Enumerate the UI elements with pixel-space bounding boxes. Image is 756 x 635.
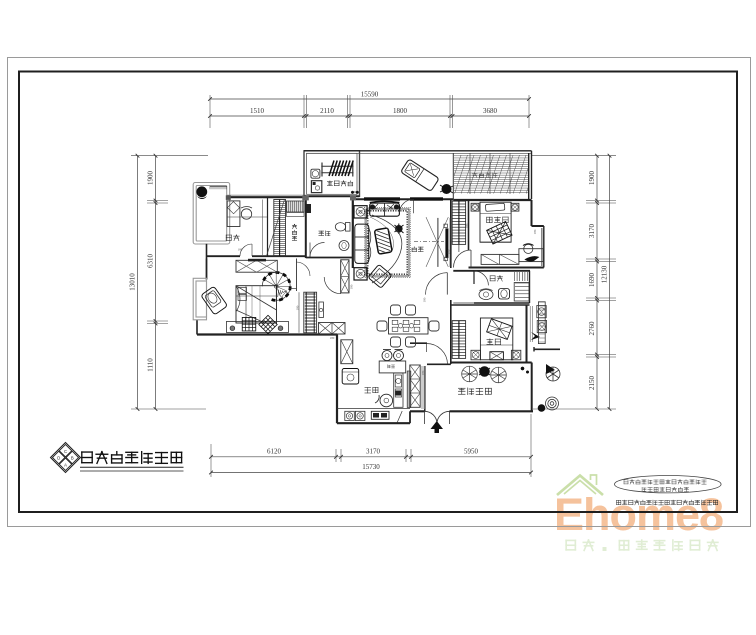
svg-text:A: A [64,462,67,467]
svg-text:3170: 3170 [366,448,381,456]
svg-text:6310: 6310 [147,254,155,269]
svg-text:2110: 2110 [320,107,334,115]
svg-text:3170: 3170 [588,224,596,239]
svg-text:6120: 6120 [267,448,282,456]
svg-text:B: B [71,456,74,461]
svg-text:1510: 1510 [250,107,265,115]
svg-text:D: D [57,456,60,461]
svg-text:180: 180 [421,370,425,375]
svg-text:15590: 15590 [361,91,379,99]
svg-text:180: 180 [350,284,354,289]
svg-text:13010: 13010 [129,273,137,291]
svg-text:2150: 2150 [588,376,596,391]
svg-text:1900: 1900 [147,171,155,186]
svg-text:180: 180 [330,336,335,340]
svg-text:5950: 5950 [464,448,479,456]
svg-text:1900: 1900 [588,171,596,186]
svg-text:C: C [64,449,67,454]
svg-text:Ehome8: Ehome8 [554,489,723,540]
svg-text:15730: 15730 [362,463,380,471]
svg-text:1110: 1110 [147,358,155,372]
svg-text:180: 180 [447,249,451,254]
svg-text:2760: 2760 [588,321,596,336]
svg-text:1690: 1690 [588,273,596,288]
svg-text:3680: 3680 [483,107,498,115]
svg-text:180: 180 [533,229,537,234]
svg-text:180: 180 [296,305,300,310]
svg-text:180: 180 [423,297,427,302]
svg-text:180: 180 [465,223,469,228]
svg-text:12130: 12130 [601,265,609,283]
svg-text:1800: 1800 [393,107,408,115]
